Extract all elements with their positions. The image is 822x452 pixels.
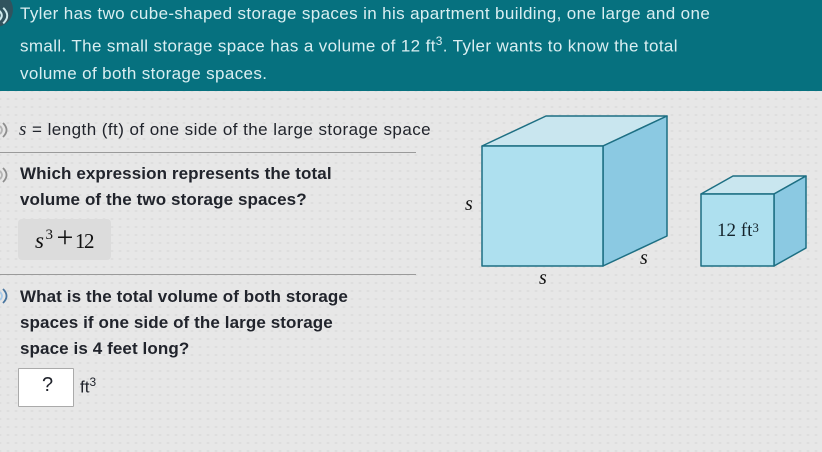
svg-text:s: s: [539, 267, 547, 289]
svg-text:s: s: [465, 193, 473, 215]
svg-text:s: s: [640, 247, 648, 269]
